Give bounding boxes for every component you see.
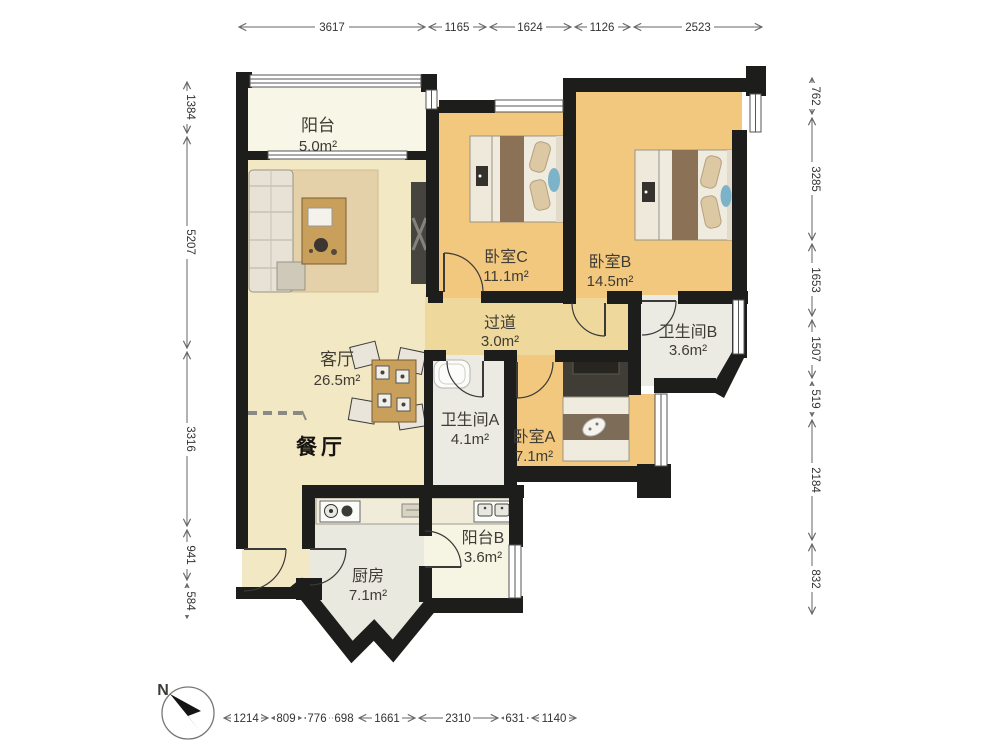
dim-value: 1653: [809, 267, 821, 293]
kitchen-counter: [316, 498, 514, 524]
compass-label: N: [157, 682, 169, 699]
label-bedroom-a-name: 卧室A: [513, 428, 556, 446]
window: [250, 75, 421, 87]
label-kitchen-area: 7.1m²: [349, 587, 387, 604]
dim-value: 3316: [184, 426, 196, 452]
dim-value: 1624: [517, 22, 543, 34]
label-bedroom-c-area: 11.1m²: [483, 268, 529, 285]
label-bedroom-b-area: 14.5m²: [587, 273, 634, 290]
dim-value: 809: [276, 713, 295, 725]
dimensions-bottom: 1214 809 776 698 1661 2310 631 1140: [224, 712, 576, 726]
dim-value: 519: [809, 389, 821, 408]
dim-value: 1140: [542, 713, 567, 725]
label-bedroom-b-name: 卧室B: [589, 253, 632, 271]
label-hallway-name: 过道: [484, 314, 516, 332]
label-balcony-area: 5.0m²: [299, 138, 337, 155]
dim-value: 1661: [374, 713, 400, 725]
dim-value: 584: [184, 591, 196, 611]
label-bathroom-b-area: 3.6m²: [669, 342, 707, 359]
dim-value: 3617: [319, 22, 345, 34]
dim-value: 832: [809, 569, 821, 588]
bed-b: [635, 150, 735, 240]
label-living-name: 客厅: [320, 350, 354, 369]
dim-value: 2523: [685, 22, 711, 34]
dim-value: 1507: [809, 336, 821, 362]
dim-value: 1214: [233, 713, 259, 725]
bed-a: [563, 357, 629, 461]
compass: N: [157, 682, 214, 739]
dim-value: 941: [184, 545, 196, 564]
label-bathroom-a-area: 4.1m²: [451, 431, 489, 448]
label-hallway-area: 3.0m²: [481, 333, 519, 350]
dimensions-right: 762 3285 1653 1507 519 2184 832: [805, 78, 821, 614]
label-balcony-name: 阳台: [301, 116, 335, 135]
dim-value: 2184: [809, 467, 821, 493]
dim-value: 776: [307, 713, 326, 725]
label-dining-name: 餐厅: [296, 435, 346, 459]
dimensions-left: 1384 5207 3316 941 584: [180, 82, 196, 618]
label-living-area: 26.5m²: [314, 372, 361, 389]
dim-value: 698: [334, 713, 353, 725]
dim-value: 631: [505, 713, 524, 725]
bed-c: [470, 136, 564, 222]
ottoman: [277, 262, 305, 290]
label-balcony-b-area: 3.6m²: [464, 549, 502, 566]
dim-value: 762: [809, 86, 821, 105]
label-bathroom-b-name: 卫生间B: [659, 323, 718, 341]
label-bedroom-a-area: 7.1m²: [515, 448, 553, 465]
dim-value: 1126: [590, 22, 615, 34]
dim-value: 1165: [445, 22, 470, 34]
floorplan: 阳台 5.0m² 客厅 26.5m² 餐厅 卧室C 11.1m² 卧室B 14.…: [0, 0, 1000, 750]
label-bathroom-a-name: 卫生间A: [441, 411, 500, 429]
dimensions-top: 3617 1165 1624 1126 2523: [239, 21, 762, 35]
dim-value: 5207: [184, 229, 196, 255]
label-balcony-b-name: 阳台B: [462, 529, 505, 547]
label-bedroom-c-name: 卧室C: [484, 248, 528, 266]
dim-value: 3285: [809, 166, 821, 192]
dim-value: 1384: [184, 94, 196, 120]
label-kitchen-name: 厨房: [352, 567, 384, 585]
dim-value: 2310: [445, 713, 471, 725]
